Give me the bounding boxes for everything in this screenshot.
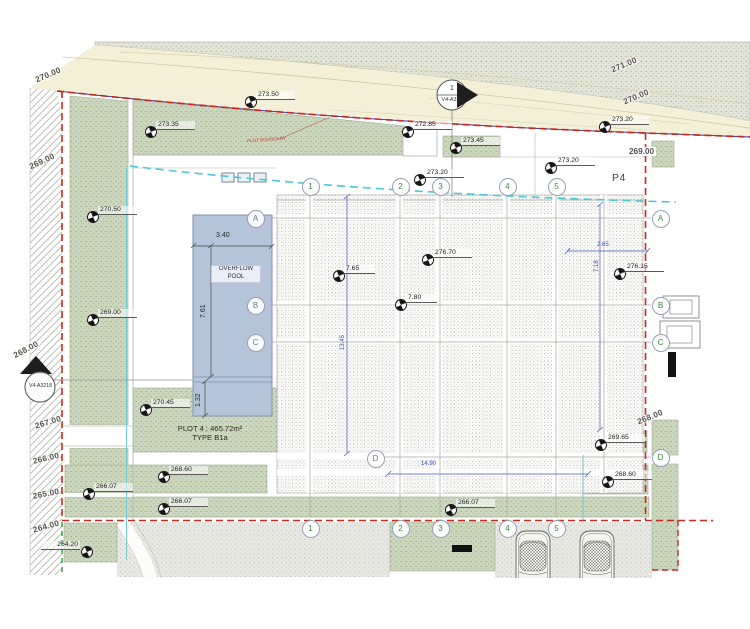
contour-label-269-right: 269.00 (627, 147, 656, 156)
plot-title-line2: TYPE B1a (158, 433, 262, 442)
parking-area (114, 522, 652, 578)
verge-hatch (30, 88, 62, 575)
dim-bay-height: 13.45 (340, 335, 346, 350)
plot-title-line1: PLOT 4 : 465.72m² (158, 424, 262, 433)
plot-p4-label: P4 (612, 172, 626, 184)
wall-section-block (452, 545, 472, 552)
section-left-ref: V4-A3218 (22, 383, 59, 389)
dim-deck-width: 2.65 (597, 242, 609, 248)
dim-pool-width: 3.40 (216, 232, 230, 239)
section-top-ref: V4-A321 (434, 97, 470, 103)
equipment-units (660, 296, 700, 377)
dim-pool-height: 7.61 (200, 304, 207, 318)
site-plan-drawing: 270.00269.00268.00267.00266.00265.00264.… (0, 0, 750, 629)
plan-linework (0, 0, 750, 629)
dim-bay-width: 14.90 (421, 461, 436, 467)
section-top-number: 1 (444, 85, 460, 92)
dim-pool-basin: 1.32 (195, 393, 202, 407)
plot-title: PLOT 4 : 465.72m² TYPE B1a (158, 424, 262, 443)
skylights (222, 173, 266, 182)
pool-label-line1: OVERFLOW (212, 266, 260, 274)
dim-deck-height: 7.18 (594, 260, 600, 272)
pool-label: OVERFLOW POOL (212, 266, 260, 282)
deck (277, 195, 643, 493)
pool-label-line2: POOL (212, 274, 260, 282)
